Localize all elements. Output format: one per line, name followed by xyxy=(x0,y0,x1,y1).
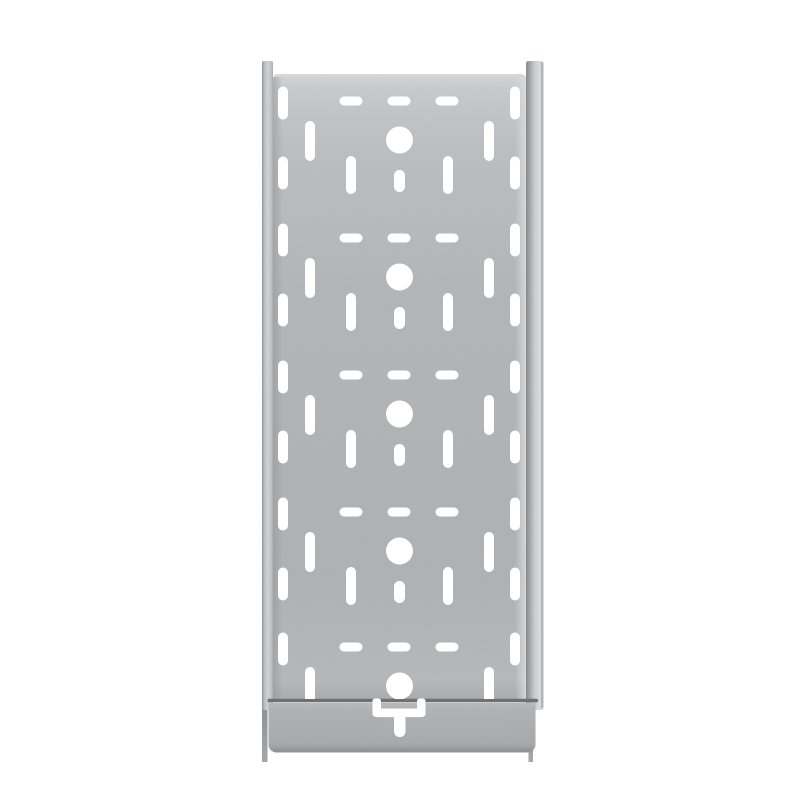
bracket-cutout-tail xyxy=(394,711,406,737)
slot-horizontal xyxy=(388,643,411,652)
slot-edge xyxy=(278,294,288,327)
slot-horizontal xyxy=(436,508,459,517)
slot-horizontal xyxy=(388,508,411,517)
slot-center-small xyxy=(394,170,405,192)
slot-edge xyxy=(278,568,288,601)
hole-circle xyxy=(386,538,413,565)
slot-vertical xyxy=(305,395,315,435)
slot-horizontal xyxy=(436,643,459,652)
slot-horizontal xyxy=(436,371,459,380)
slot-vertical xyxy=(443,293,453,331)
slot-edge xyxy=(510,294,520,327)
slot-vertical xyxy=(484,395,494,435)
hole-circle xyxy=(386,401,413,428)
slot-vertical xyxy=(346,430,356,468)
slot-horizontal xyxy=(340,97,363,106)
slot-edge xyxy=(278,87,288,120)
slot-vertical xyxy=(305,121,315,161)
slot-edge xyxy=(278,224,288,257)
slot-edge xyxy=(278,633,288,666)
slot-edge xyxy=(510,633,520,666)
slot-vertical xyxy=(346,293,356,331)
slot-horizontal xyxy=(340,234,363,243)
slot-vertical xyxy=(443,430,453,468)
slot-center-small xyxy=(394,307,405,329)
slot-center-small xyxy=(394,444,405,466)
slot-vertical xyxy=(484,532,494,572)
slot-horizontal xyxy=(388,97,411,106)
slot-vertical xyxy=(346,156,356,194)
slot-horizontal xyxy=(388,371,411,380)
slot-horizontal xyxy=(436,234,459,243)
slot-edge xyxy=(278,157,288,190)
hole-circle xyxy=(386,264,413,291)
slot-horizontal xyxy=(388,234,411,243)
slot-edge xyxy=(278,361,288,394)
slot-edge xyxy=(510,87,520,120)
slot-edge xyxy=(510,431,520,464)
slot-vertical xyxy=(484,258,494,298)
hole-circle xyxy=(386,673,413,700)
slot-edge xyxy=(278,431,288,464)
slot-vertical xyxy=(346,567,356,605)
slot-vertical xyxy=(443,567,453,605)
slot-edge xyxy=(510,568,520,601)
slot-edge xyxy=(510,498,520,531)
slot-horizontal xyxy=(340,371,363,380)
product-photo-stage xyxy=(0,0,800,800)
product-photo xyxy=(0,0,800,800)
slot-horizontal xyxy=(340,508,363,517)
slot-horizontal xyxy=(436,97,459,106)
slot-edge xyxy=(278,498,288,531)
hole-circle xyxy=(386,127,413,154)
cable-tray-image xyxy=(0,0,800,800)
slot-horizontal xyxy=(340,643,363,652)
slot-edge xyxy=(510,361,520,394)
slot-vertical xyxy=(484,121,494,161)
slot-center-small xyxy=(394,581,405,603)
slot-edge xyxy=(510,157,520,190)
slot-edge xyxy=(510,224,520,257)
slot-vertical xyxy=(305,258,315,298)
slot-vertical xyxy=(443,156,453,194)
slot-vertical xyxy=(305,532,315,572)
